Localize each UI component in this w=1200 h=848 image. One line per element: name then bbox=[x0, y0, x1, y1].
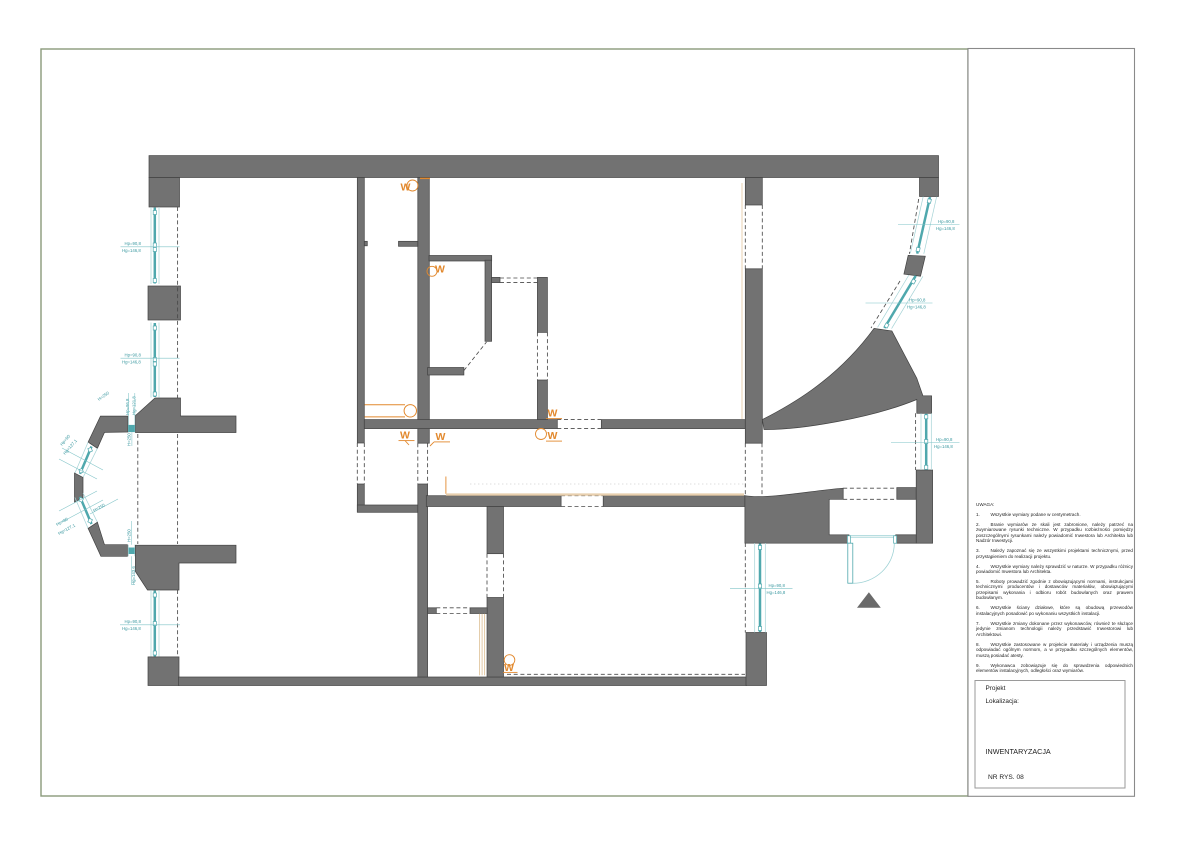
svg-text:Hp=90,8: Hp=90,8 bbox=[938, 219, 955, 224]
svg-text:Hg=121,8: Hg=121,8 bbox=[132, 396, 137, 415]
svg-text:W: W bbox=[400, 430, 410, 442]
svg-text:H=250: H=250 bbox=[92, 502, 106, 513]
svg-text:W: W bbox=[435, 264, 445, 276]
svg-text:Hg=146,8: Hg=146,8 bbox=[122, 626, 141, 631]
svg-text:W: W bbox=[548, 408, 558, 420]
svg-text:Hg=143,6: Hg=143,6 bbox=[131, 566, 136, 585]
svg-text:W: W bbox=[436, 431, 446, 443]
svg-text:H=250: H=250 bbox=[97, 390, 111, 402]
svg-text:Hp=90,8: Hp=90,8 bbox=[125, 619, 142, 624]
svg-text:Hg=146,8: Hg=146,8 bbox=[122, 248, 141, 253]
svg-text:Hp=96,8: Hp=96,8 bbox=[125, 398, 130, 415]
svg-text:Hp=90,8: Hp=90,8 bbox=[936, 437, 953, 442]
svg-text:Hg=146,8: Hg=146,8 bbox=[122, 360, 141, 365]
svg-text:Hp=90,8: Hp=90,8 bbox=[125, 353, 142, 358]
svg-text:Hp=90,8: Hp=90,8 bbox=[769, 583, 786, 588]
svg-text:Hg=146,8: Hg=146,8 bbox=[767, 590, 786, 595]
svg-text:Hp=90,8: Hp=90,8 bbox=[125, 241, 142, 246]
svg-text:W: W bbox=[548, 430, 558, 442]
svg-text:Hg=146,8: Hg=146,8 bbox=[934, 444, 953, 449]
svg-text:H=250: H=250 bbox=[127, 433, 132, 446]
svg-text:Hp=90,8: Hp=90,8 bbox=[909, 298, 926, 303]
svg-text:Hg=146,8: Hg=146,8 bbox=[936, 226, 955, 231]
svg-text:Hg=146,8: Hg=146,8 bbox=[907, 305, 926, 310]
svg-text:H=250: H=250 bbox=[127, 529, 132, 542]
svg-text:W: W bbox=[401, 182, 411, 194]
